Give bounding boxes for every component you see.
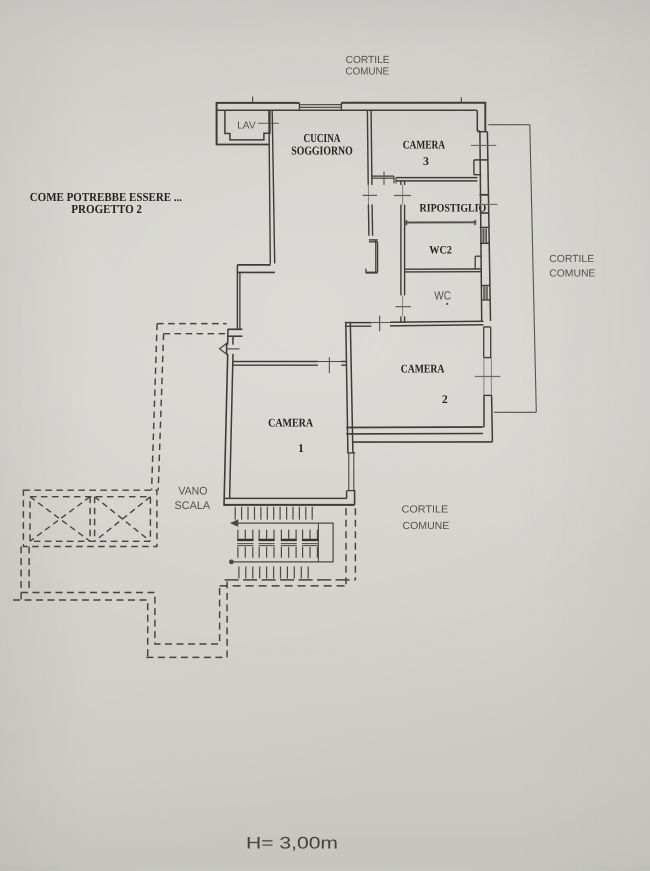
svg-text:COMUNE: COMUNE xyxy=(403,521,450,532)
svg-text:WC: WC xyxy=(434,289,451,303)
svg-text:WC2: WC2 xyxy=(429,245,452,257)
svg-text:2: 2 xyxy=(442,392,448,406)
svg-text:CORTILE: CORTILE xyxy=(346,55,390,66)
svg-text:1: 1 xyxy=(298,441,304,455)
svg-text:CORTILE: CORTILE xyxy=(402,504,449,515)
svg-text:CAMERA: CAMERA xyxy=(268,416,313,430)
svg-text:CAMERA: CAMERA xyxy=(403,138,446,152)
svg-text:H= 3,00m: H= 3,00m xyxy=(246,834,338,853)
svg-text:COMUNE: COMUNE xyxy=(549,268,595,279)
svg-text:CORTILE: CORTILE xyxy=(549,254,594,265)
svg-text:COMUNE: COMUNE xyxy=(346,67,390,78)
svg-text:LAV: LAV xyxy=(237,121,256,132)
svg-text:VANO: VANO xyxy=(178,485,207,497)
svg-text:3: 3 xyxy=(423,154,429,168)
svg-text:SOGGIORNO: SOGGIORNO xyxy=(291,144,353,158)
svg-text:RIPOSTIGLIO: RIPOSTIGLIO xyxy=(420,202,487,214)
svg-text:CAMERA: CAMERA xyxy=(401,361,445,375)
svg-text:PROGETTO 2: PROGETTO 2 xyxy=(71,202,142,216)
svg-text:SCALA: SCALA xyxy=(175,500,211,512)
